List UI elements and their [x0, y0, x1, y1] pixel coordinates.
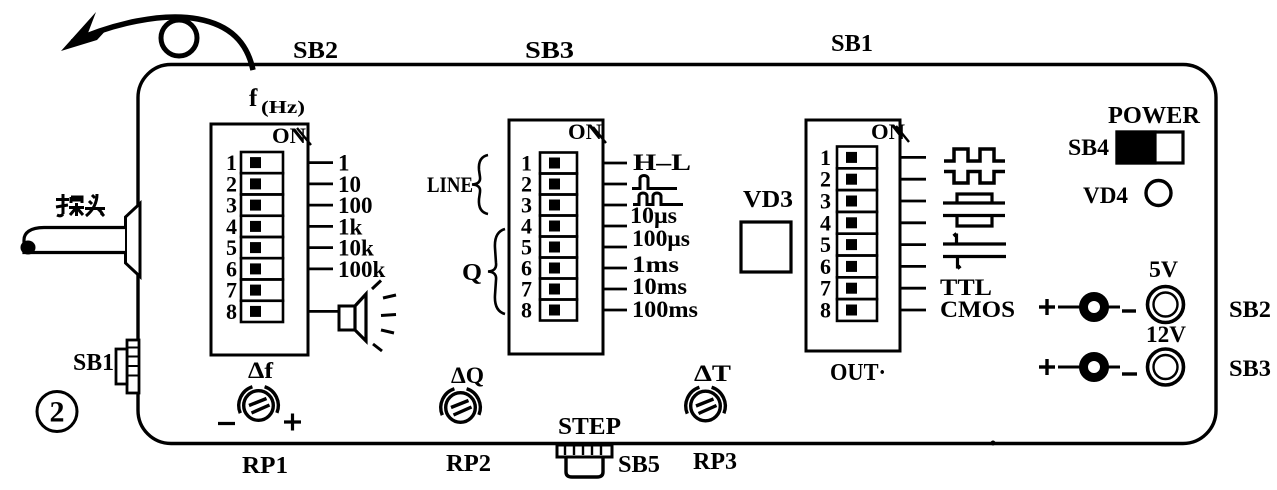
svg-text:SB4: SB4	[1068, 135, 1110, 160]
svg-text:8: 8	[521, 298, 532, 323]
svg-text:f: f	[249, 85, 258, 112]
svg-text:Δf: Δf	[248, 358, 273, 383]
svg-text:100ms: 100ms	[632, 297, 698, 322]
svg-text:POWER: POWER	[1108, 103, 1201, 129]
svg-text:RP1: RP1	[242, 453, 288, 479]
svg-text:12V: 12V	[1146, 322, 1186, 347]
svg-text:100k: 100k	[338, 257, 386, 282]
svg-text:STEP: STEP	[558, 414, 621, 440]
svg-text:5V: 5V	[1149, 257, 1178, 282]
svg-text:2: 2	[50, 396, 65, 429]
svg-text:SB1: SB1	[73, 350, 114, 376]
svg-text:(Hz): (Hz)	[261, 97, 305, 118]
svg-text:SB3: SB3	[525, 38, 574, 64]
svg-text:RP2: RP2	[446, 451, 491, 477]
svg-text:SB5: SB5	[618, 452, 660, 478]
svg-text:ON: ON	[272, 123, 306, 148]
svg-text:Q: Q	[462, 260, 482, 286]
svg-text:8: 8	[226, 299, 237, 324]
svg-text:VD4: VD4	[1083, 183, 1128, 208]
svg-text:CMOS: CMOS	[940, 297, 1015, 322]
svg-text:10ms: 10ms	[632, 274, 687, 299]
svg-text:ΔT: ΔT	[694, 361, 731, 386]
svg-text:10μs: 10μs	[630, 203, 677, 228]
svg-text:ΔQ: ΔQ	[451, 363, 484, 388]
svg-text:LINE: LINE	[427, 172, 473, 197]
svg-text:SB3: SB3	[1229, 356, 1271, 381]
svg-text:VD3: VD3	[743, 187, 793, 213]
svg-text:SB2: SB2	[293, 38, 338, 64]
svg-text:H–L: H–L	[633, 150, 691, 175]
svg-text:100μs: 100μs	[632, 226, 690, 251]
svg-text:RP3: RP3	[693, 449, 737, 475]
svg-text:OUT·: OUT·	[830, 360, 886, 386]
svg-text:8: 8	[820, 298, 831, 323]
svg-text:SB2: SB2	[1229, 297, 1271, 322]
svg-text:SB1: SB1	[831, 31, 873, 57]
